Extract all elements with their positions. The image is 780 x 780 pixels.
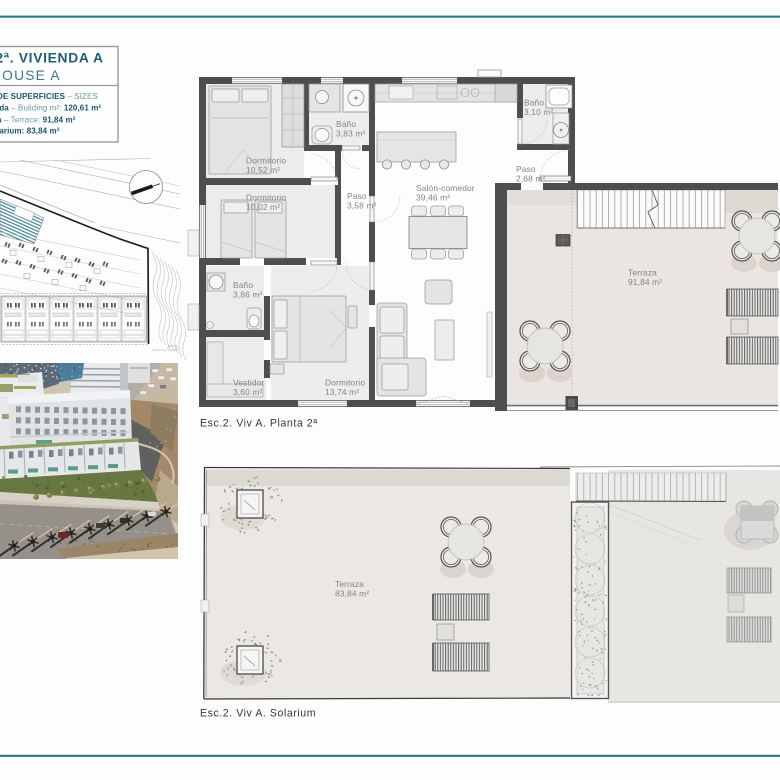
svg-text:Baño: Baño	[336, 119, 356, 129]
svg-text:Baño: Baño	[233, 280, 253, 290]
svg-text:3,60 m²: 3,60 m²	[233, 387, 263, 397]
svg-text:Dormitorio: Dormitorio	[246, 193, 286, 203]
svg-text:Baño: Baño	[524, 98, 544, 108]
svg-text:DE SUPERFICIES – SIZES: DE SUPERFICIES – SIZES	[0, 92, 98, 101]
svg-text:.2ª. VIVIENDA A: .2ª. VIVIENDA A	[0, 51, 104, 66]
svg-text:13,74 m²: 13,74 m²	[325, 387, 359, 397]
svg-text:larium: 83,84 m²: larium: 83,84 m²	[0, 127, 60, 136]
svg-text:Paso: Paso	[347, 191, 367, 201]
svg-text:3,58 m²: 3,58 m²	[347, 201, 377, 211]
svg-text:Salón-comedor: Salón-comedor	[416, 183, 475, 193]
svg-text:Esc.2. Viv A. Solarium: Esc.2. Viv A. Solarium	[200, 708, 316, 720]
svg-text:Vestidor: Vestidor	[233, 378, 265, 388]
svg-text:Dormitorio: Dormitorio	[246, 156, 286, 166]
svg-text:Esc.2. Viv A. Planta 2ª: Esc.2. Viv A. Planta 2ª	[200, 418, 318, 430]
svg-text:3,83 m²: 3,83 m²	[336, 129, 366, 139]
svg-text:83,84 m²: 83,84 m²	[335, 589, 369, 599]
svg-text:Terraza: Terraza	[628, 268, 657, 278]
svg-text:91,84 m²: 91,84 m²	[628, 277, 662, 287]
svg-text:HOUSE A: HOUSE A	[0, 68, 61, 83]
svg-text:10,52 m²: 10,52 m²	[246, 165, 280, 175]
svg-text:10,02 m²: 10,02 m²	[246, 202, 280, 212]
svg-text:a – Terrace: 91,84 m²: a – Terrace: 91,84 m²	[0, 115, 76, 124]
svg-text:3,10 m²: 3,10 m²	[524, 107, 554, 117]
svg-text:39,46 m²: 39,46 m²	[416, 193, 450, 203]
svg-text:Dormitorio: Dormitorio	[325, 378, 365, 388]
svg-text:Terraza: Terraza	[335, 579, 364, 589]
svg-text:Paso: Paso	[516, 164, 536, 174]
svg-text:2,68 m²: 2,68 m²	[516, 174, 546, 184]
svg-text:ida – Building m²: 120,61 m²: ida – Building m²: 120,61 m²	[0, 104, 101, 113]
svg-text:3,86 m²: 3,86 m²	[233, 290, 263, 300]
